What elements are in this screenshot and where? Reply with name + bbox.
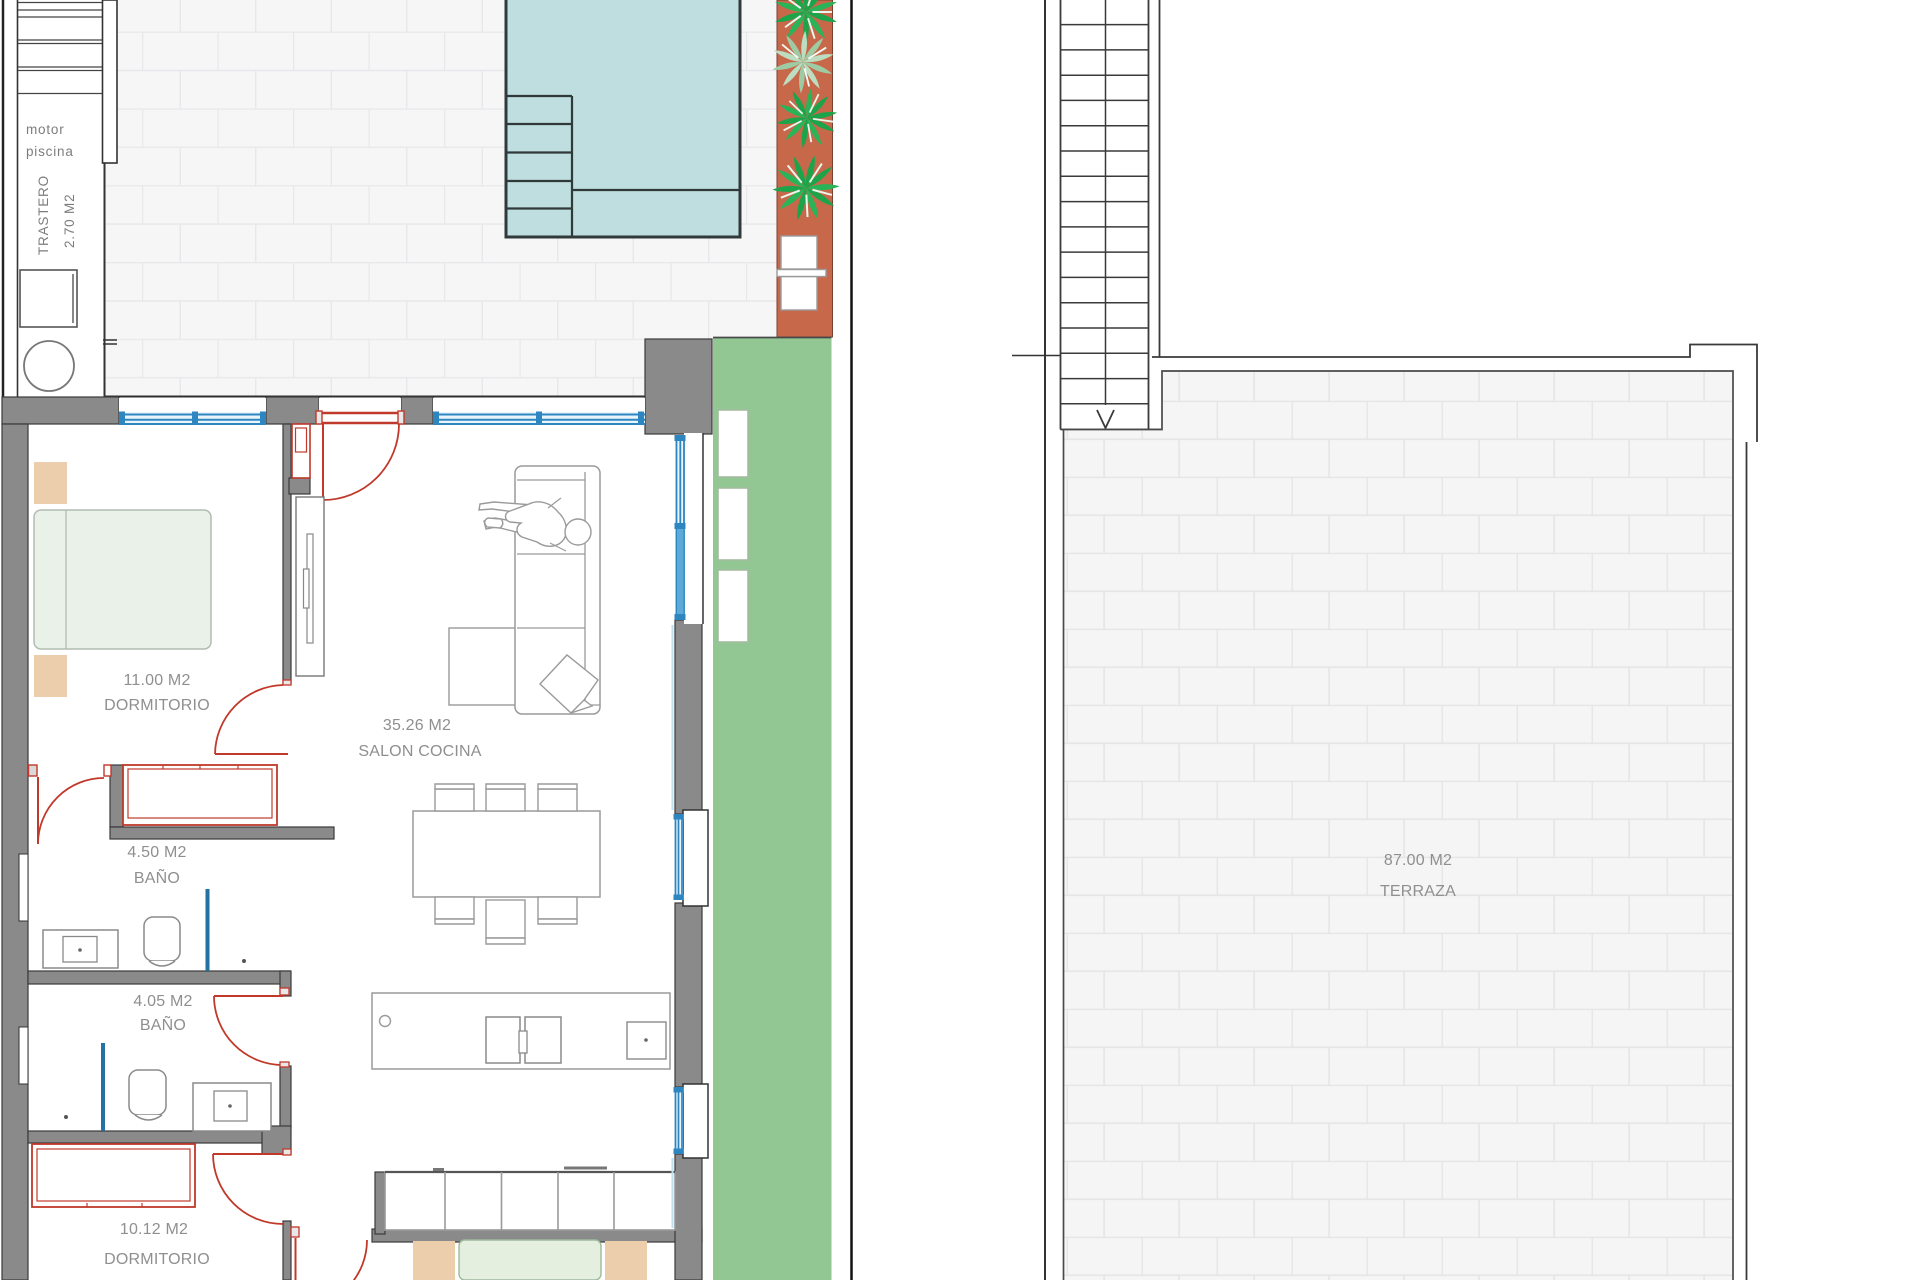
svg-text:DORMITORIO: DORMITORIO <box>104 1251 210 1268</box>
svg-text:SALON COCINA: SALON COCINA <box>358 743 481 760</box>
svg-text:TERRAZA: TERRAZA <box>1380 883 1456 900</box>
svg-text:BAÑO: BAÑO <box>140 1014 186 1034</box>
svg-text:4.50 M2: 4.50 M2 <box>127 844 186 861</box>
svg-text:4.05 M2: 4.05 M2 <box>133 993 192 1010</box>
svg-text:2.70 M2: 2.70 M2 <box>62 194 77 248</box>
svg-text:BAÑO: BAÑO <box>134 867 180 887</box>
svg-text:87.00 M2: 87.00 M2 <box>1384 852 1452 869</box>
svg-text:35.26 M2: 35.26 M2 <box>383 717 451 734</box>
svg-text:DORMITORIO: DORMITORIO <box>104 697 210 714</box>
svg-text:piscina: piscina <box>26 144 74 159</box>
svg-text:motor: motor <box>26 122 65 137</box>
svg-text:TRASTERO: TRASTERO <box>36 175 51 255</box>
svg-text:11.00 M2: 11.00 M2 <box>123 672 190 689</box>
svg-text:10.12 M2: 10.12 M2 <box>120 1221 188 1238</box>
